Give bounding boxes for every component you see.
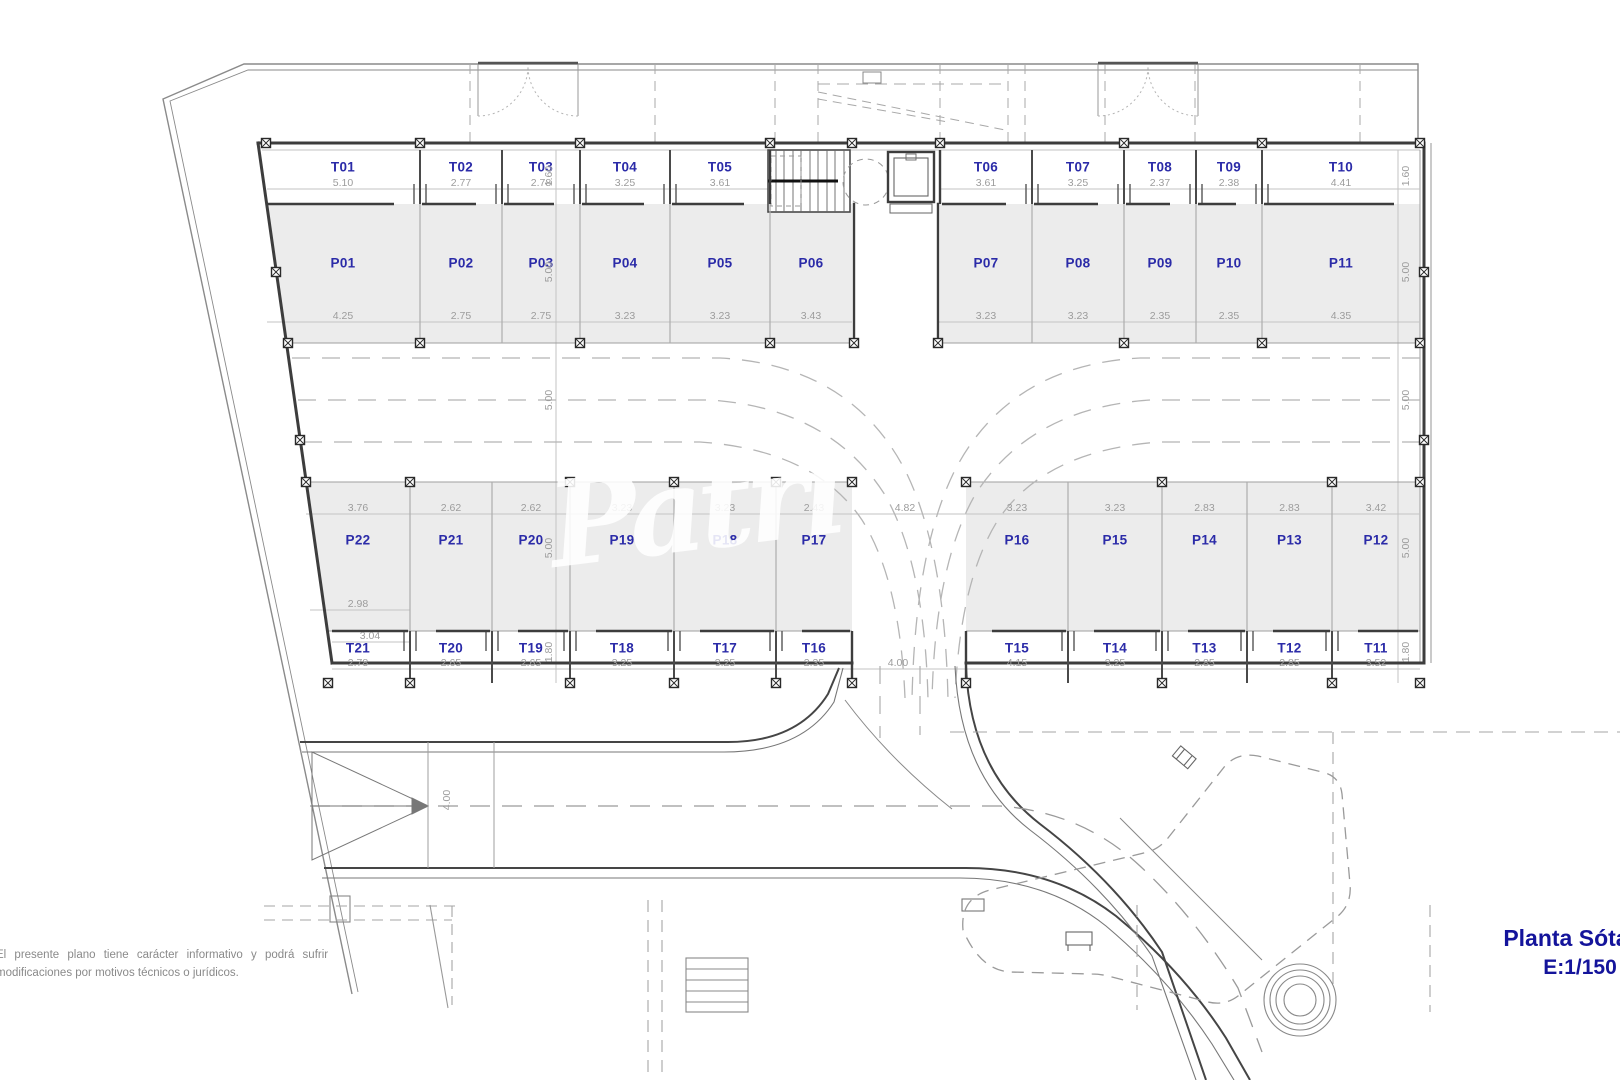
storage-cell-dimension: 3.25	[615, 177, 635, 189]
storage-cell-label: T07	[1066, 160, 1090, 175]
storage-cell-label: T15	[1005, 641, 1029, 656]
storage-cell-label: T16	[802, 641, 826, 656]
storage-cell-label: T21	[346, 641, 370, 656]
storage-cell-label: T20	[439, 641, 463, 656]
parking-cell-label: P22	[346, 533, 371, 548]
ramp-arrow	[312, 742, 494, 868]
storage-cell-label: T11	[1364, 641, 1387, 656]
parking-cell-dimension: 2.35	[1219, 310, 1239, 322]
parking-cell-label: P10	[1217, 256, 1242, 271]
left-chain-dimension: 5.00	[543, 262, 555, 282]
storage-cell-dimension: 2.85	[1194, 657, 1214, 669]
parking-cell-dimension: 3.42	[1366, 502, 1386, 514]
parking-cell-dimension: 2.62	[521, 502, 541, 514]
parking-cell-dimension: 2.75	[531, 310, 551, 322]
parking-cell-dimension: 3.23	[612, 502, 632, 514]
parking-cell-dimension: 4.25	[333, 310, 353, 322]
parking-cell-label: P21	[439, 533, 464, 548]
storage-cell-dimension: 3.25	[612, 657, 632, 669]
stair-core	[768, 150, 889, 212]
elevator	[888, 152, 934, 213]
parking-cell-label: P20	[519, 533, 544, 548]
pool-outline	[963, 755, 1351, 1003]
storage-cell-dimension: 3.25	[1068, 177, 1088, 189]
storage-cell-dimension: 5.10	[333, 177, 353, 189]
storage-cell-dimension: 2.35	[804, 657, 824, 669]
parking-cell-dimension: 2.62	[441, 502, 461, 514]
left-chain-dimension: 5.00	[543, 390, 555, 410]
parking-cell-label: P13	[1277, 533, 1302, 548]
road-width-bottom-dimension: 4.00	[888, 657, 908, 669]
storage-cell-label: T01	[331, 160, 355, 175]
right-chain-dimension: 1.60	[1400, 166, 1412, 186]
disclaimer: El presente plano tiene carácter informa…	[0, 946, 376, 983]
storage-cell-dimension: 3.25	[1105, 657, 1125, 669]
storage-cell-dimension: 2.85	[1279, 657, 1299, 669]
parking-cell-dimension: 3.23	[710, 310, 730, 322]
parking-cell-dimension: 3.23	[715, 502, 735, 514]
parking-cell-label: P18	[713, 533, 738, 548]
right-chain-dimension: 5.00	[1400, 262, 1412, 282]
right-chain-dimension: 1.80	[1400, 642, 1412, 662]
parking-cell-dimension: 2.43	[804, 502, 824, 514]
p22-depth-dimension: 2.98	[348, 598, 368, 610]
drawing-title: Planta Sótano	[1440, 924, 1620, 954]
exterior-steps	[686, 958, 748, 1012]
storage-cell-dimension: 2.65	[521, 657, 541, 669]
parking-cell-dimension: 3.43	[801, 310, 821, 322]
parking-cell-label: P02	[449, 256, 474, 271]
parking-cell-dimension: 3.23	[615, 310, 635, 322]
parking-cell-dimension: 3.76	[348, 502, 368, 514]
parking-cell-label: P07	[974, 256, 999, 271]
parking-cell-dimension: 4.35	[1331, 310, 1351, 322]
roadway	[300, 666, 1262, 1080]
t21-width-dimension: 3.04	[360, 630, 380, 642]
left-chain-dimension: 5.00	[543, 538, 555, 558]
storage-cell-label: T10	[1329, 160, 1353, 175]
drawing-title-block: Planta Sótano E:1/150	[1440, 924, 1620, 981]
storage-cell-label: T09	[1217, 160, 1241, 175]
parking-cell-label: P12	[1364, 533, 1389, 548]
storage-cell-label: T06	[974, 160, 998, 175]
storage-cell-dimension: 3.25	[715, 657, 735, 669]
road-width-top-dimension: 4.82	[895, 502, 915, 514]
storage-cell-label: T17	[713, 641, 737, 656]
parking-cell-label: P14	[1192, 533, 1217, 548]
parking-cell-label: P17	[802, 533, 827, 548]
parking-cell-label: P11	[1329, 256, 1353, 271]
ramp-width-dimension: 4.00	[441, 790, 453, 810]
storage-cell-dimension: 3.61	[976, 177, 996, 189]
storage-cell-dimension: 2.38	[1219, 177, 1239, 189]
right-chain-dimension: 5.00	[1400, 538, 1412, 558]
parking-cell-dimension: 2.35	[1150, 310, 1170, 322]
parking-cell-label: P16	[1005, 533, 1030, 548]
exterior-dashed-elements	[264, 732, 1620, 1080]
parking-cell-label: P05	[708, 256, 733, 271]
parking-cell-dimension: 3.23	[1068, 310, 1088, 322]
bench	[1066, 932, 1092, 951]
parking-cell-dimension: 3.23	[1007, 502, 1027, 514]
parking-cell-label: P01	[331, 256, 356, 271]
storage-cell-dimension: 4.15	[1007, 657, 1027, 669]
basement-floor-plan: T015.10T022.77T032.78T043.25T053.61T063.…	[0, 0, 1620, 1080]
disclaimer-line-2: modificaciones por motivos técnicos o ju…	[0, 964, 376, 982]
parking-cell-label: P15	[1103, 533, 1128, 548]
storage-cell-label: T19	[519, 641, 543, 656]
parking-cell-dimension: 2.75	[451, 310, 471, 322]
storage-cell-label: T05	[708, 160, 732, 175]
parking-cell-label: P06	[799, 256, 824, 271]
storage-cell-label: T04	[613, 160, 637, 175]
drawing-scale: E:1/150	[1440, 954, 1620, 981]
spa-circle	[1264, 964, 1336, 1036]
storage-cell-dimension: 2.65	[441, 657, 461, 669]
parking-cell-dimension: 3.23	[976, 310, 996, 322]
parking-cell-label: P09	[1148, 256, 1173, 271]
storage-cell-label: T12	[1277, 641, 1301, 656]
left-chain-dimension: 1.60	[543, 166, 555, 186]
storage-cell-dimension: 3.61	[710, 177, 730, 189]
parking-cell-label: P19	[610, 533, 635, 548]
pool-ladder	[1172, 746, 1196, 769]
parking-cell-dimension: 2.83	[1194, 502, 1214, 514]
ground-floor-overlay	[470, 63, 1360, 143]
storage-cell-dimension: 2.37	[1150, 177, 1170, 189]
storage-cell-label: T02	[449, 160, 473, 175]
storage-cell-label: T08	[1148, 160, 1172, 175]
storage-cell-dimension: 3.52	[1366, 657, 1386, 669]
storage-cell-dimension: 2.78	[348, 657, 368, 669]
left-chain-dimension: 1.80	[543, 642, 555, 662]
storage-cell-dimension: 2.77	[451, 177, 471, 189]
storage-cell-label: T13	[1192, 641, 1216, 656]
right-chain-dimension: 5.00	[1400, 390, 1412, 410]
parking-cell-label: P08	[1066, 256, 1091, 271]
parking-cell-label: P04	[613, 256, 638, 271]
parking-cell-dimension: 2.83	[1279, 502, 1299, 514]
parking-cell-dimension: 3.23	[1105, 502, 1125, 514]
storage-cell-label: T14	[1103, 641, 1127, 656]
disclaimer-line-1: El presente plano tiene carácter informa…	[0, 946, 376, 964]
storage-cell-label: T18	[610, 641, 634, 656]
storage-cell-dimension: 4.41	[1331, 177, 1351, 189]
